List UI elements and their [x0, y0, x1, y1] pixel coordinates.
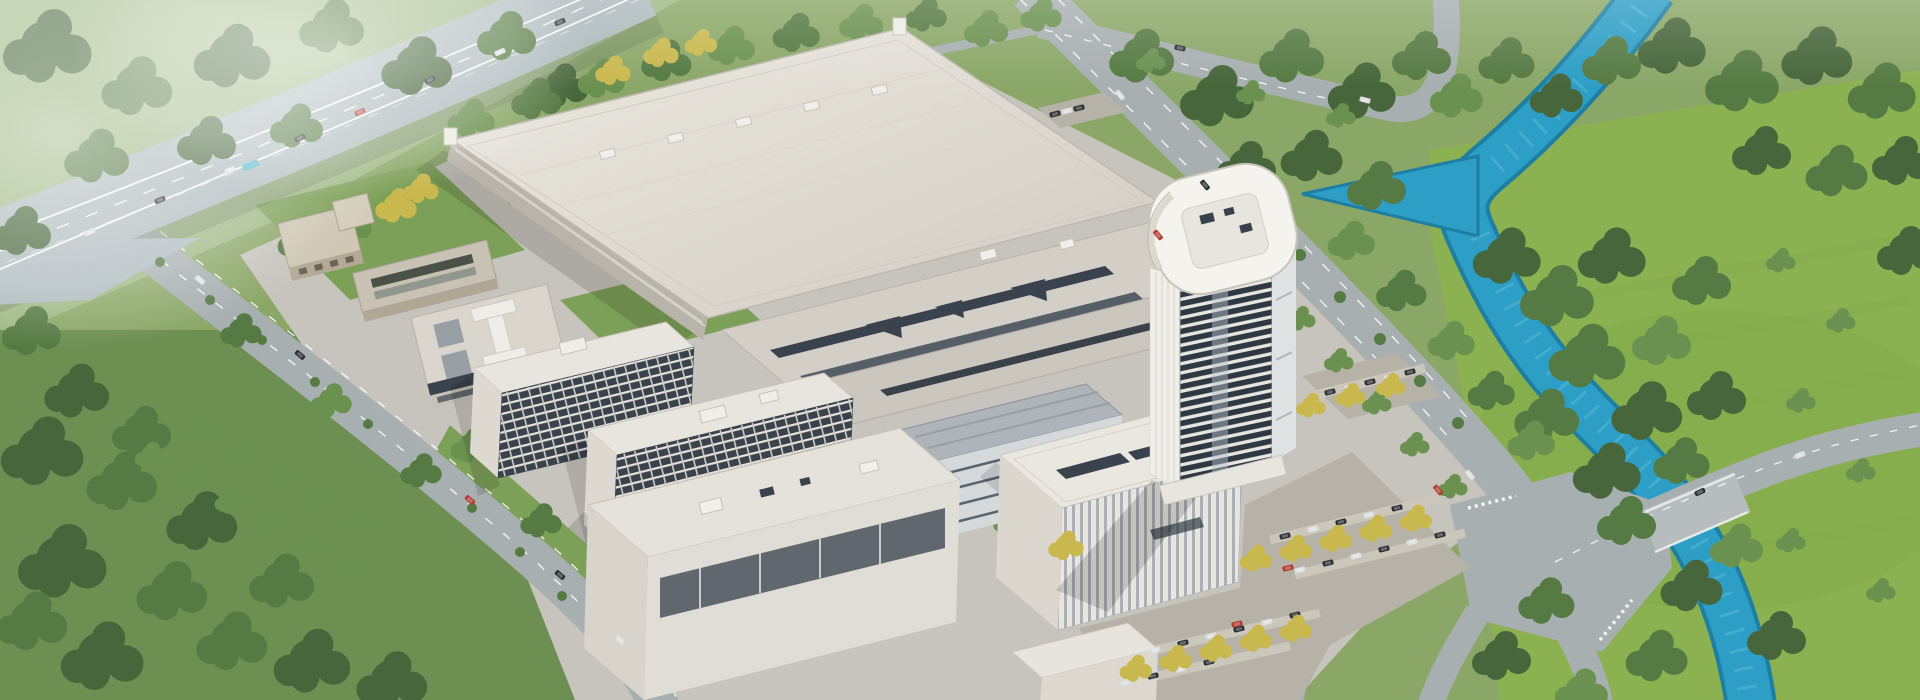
scene-canvas: [0, 0, 1920, 700]
aerial-rendering: [0, 0, 1920, 700]
top-haze: [0, 0, 1920, 90]
tower-glass-highlight: [1212, 263, 1228, 482]
tower-fin-face: [1150, 268, 1180, 490]
